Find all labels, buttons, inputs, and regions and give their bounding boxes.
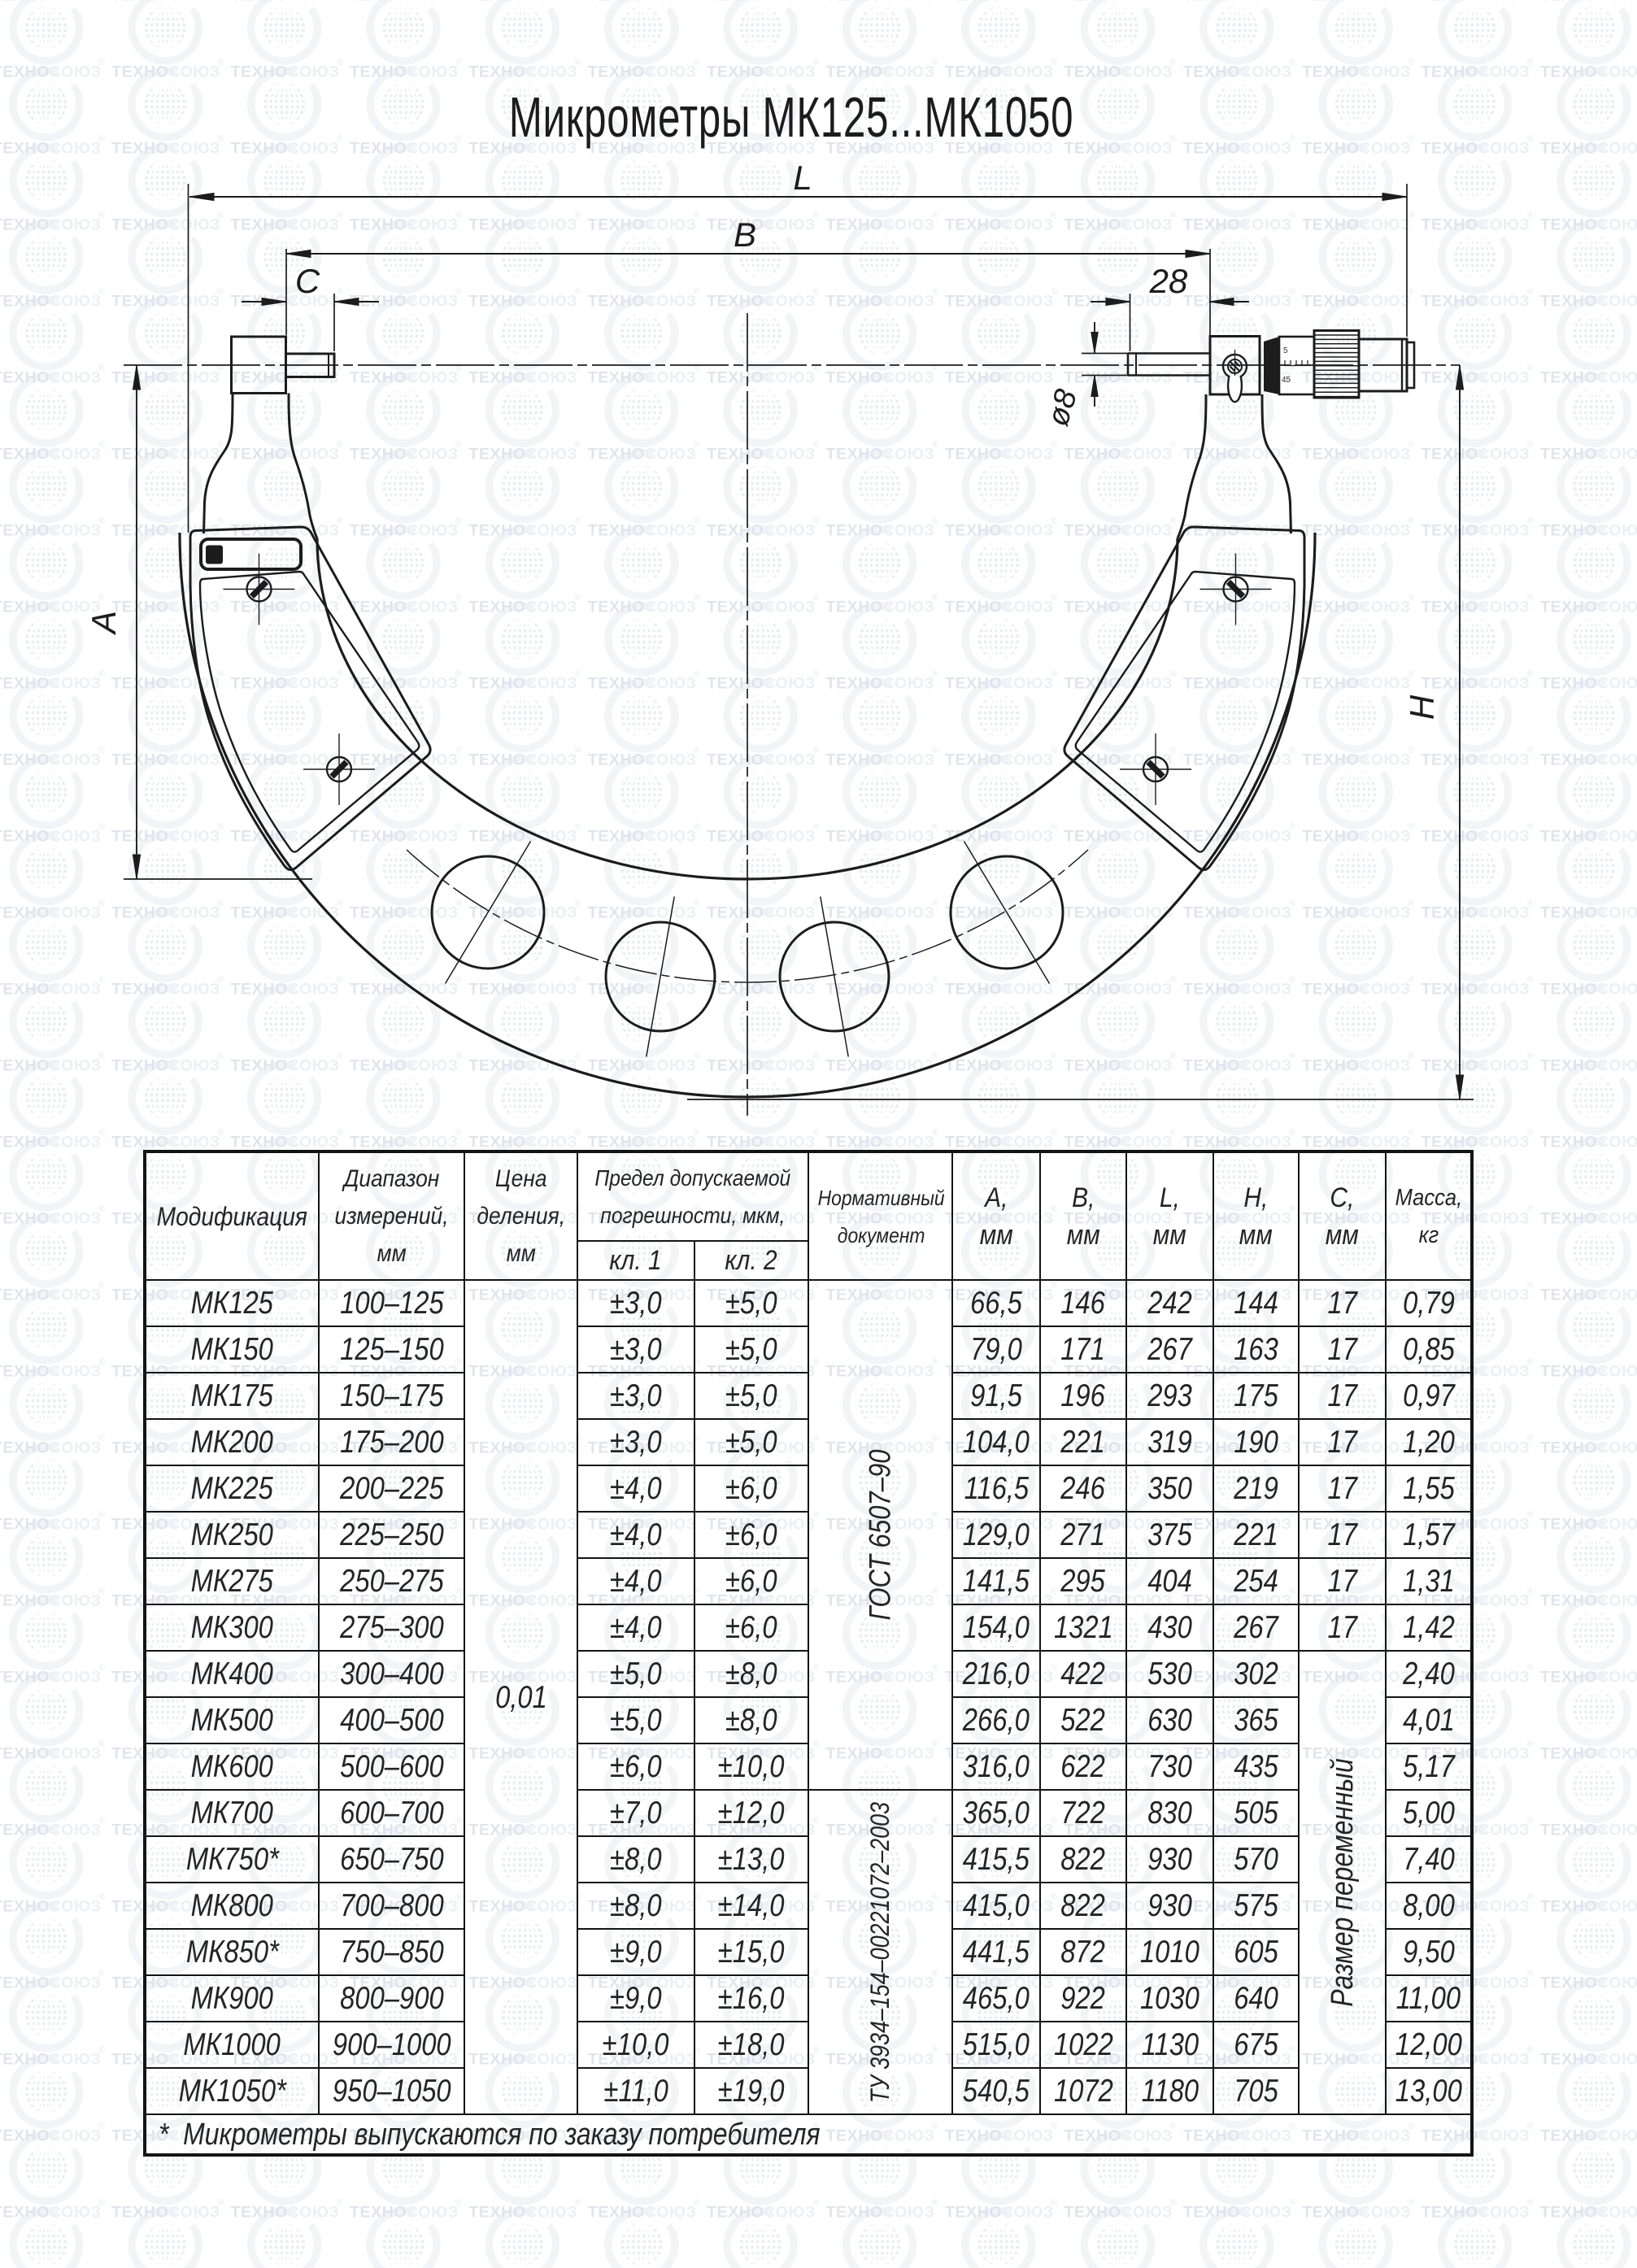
svg-text:Н: Н [1403,694,1441,720]
svg-text:L: L [793,159,812,197]
svg-text:ø8: ø8 [1041,385,1084,430]
svg-text:5: 5 [1283,346,1288,355]
svg-text:C: C [295,262,320,300]
svg-text:А: А [85,611,123,636]
svg-text:Микрометры МК125...МК1050: Микрометры МК125...МК1050 [509,85,1074,149]
svg-text:28: 28 [1149,262,1188,300]
svg-text:45: 45 [1282,376,1291,385]
svg-text:B: B [734,215,756,254]
